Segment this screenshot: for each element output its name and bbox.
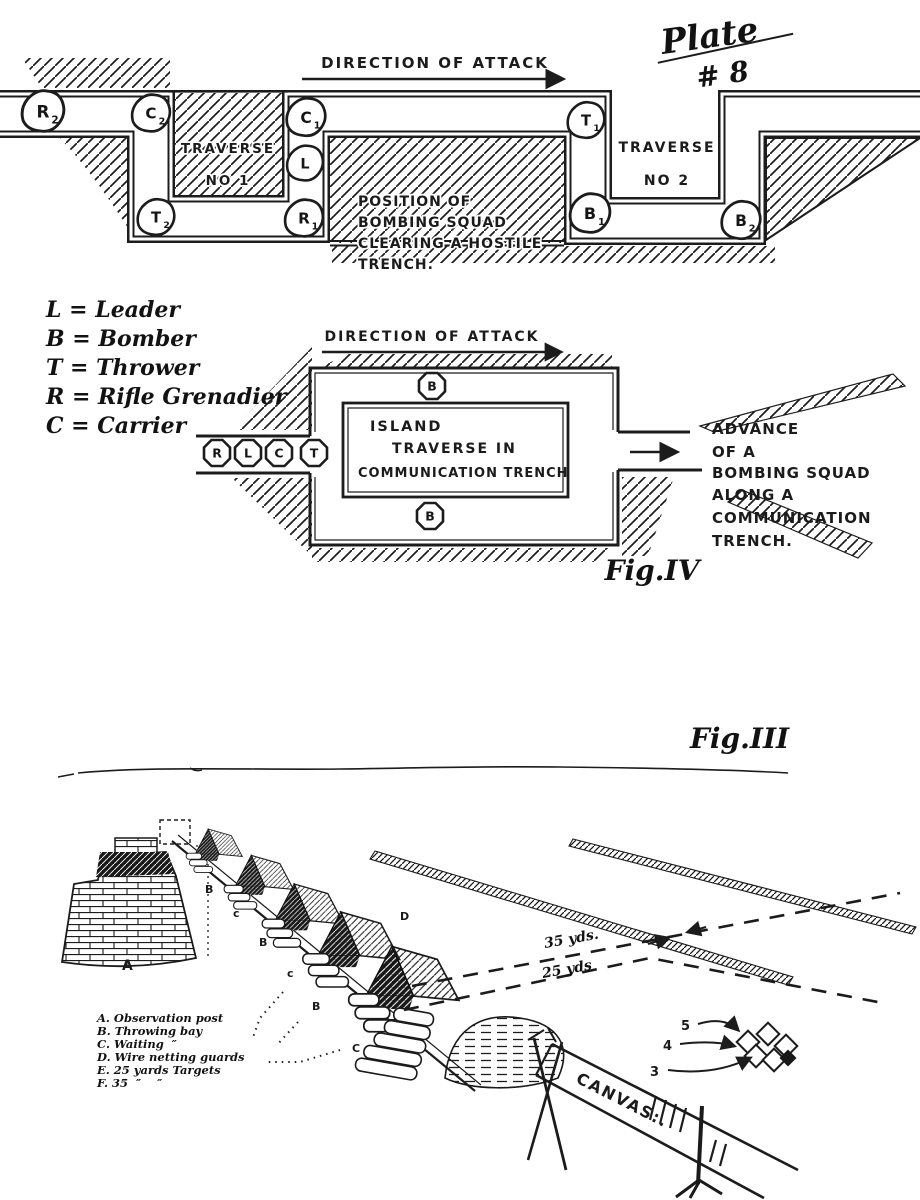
island-label-line3: COMMUNICATION TRENCH — [358, 466, 569, 481]
svg-text:5: 5 — [681, 1019, 690, 1034]
marker-B2: B2 — [722, 201, 761, 239]
distance-35-label: 35 yds. — [543, 927, 600, 952]
advance-line6: TRENCH. — [712, 532, 793, 550]
svg-text:T: T — [310, 446, 319, 461]
marker-C1: C1 — [287, 98, 326, 136]
svg-text:C: C — [274, 446, 283, 461]
legend-d: D. Wire netting guards — [96, 1050, 245, 1064]
advance-line3: BOMBING SQUAD — [712, 464, 871, 482]
svg-text:B: B — [425, 509, 435, 524]
horizon-line — [58, 767, 788, 777]
trench-start-dashed-box — [160, 820, 190, 844]
wire-guard-letter: D — [400, 910, 409, 923]
traverse2-number: NO 2 — [644, 173, 690, 189]
fig3-caption: Fig.III — [689, 722, 790, 755]
svg-text:C: C — [300, 109, 311, 127]
fig3-legend: A. Observation post B. Throwing bay C. W… — [96, 1011, 245, 1090]
position-note-line3: CLEARING A HOSTILE — [358, 236, 542, 252]
svg-text:R: R — [298, 210, 310, 228]
traverse1-label: TRAVERSE — [181, 141, 275, 157]
advance-note: ADVANCE OF A BOMBING SQUAD ALONG A COMMU… — [712, 420, 872, 550]
key-item-thrower: T = Thrower — [46, 355, 201, 381]
direction-of-attack-label-top: DIRECTION OF ATTACK — [321, 54, 549, 72]
key-item-bomber: B = Bomber — [45, 326, 197, 352]
svg-text:2: 2 — [51, 115, 58, 127]
svg-text:B: B — [584, 204, 596, 223]
target-number-labels: 5 4 3 — [650, 1019, 750, 1080]
figure-iv-island-traverse: DIRECTION OF ATTACK ISLAND TRAVERSE IN C… — [196, 329, 905, 587]
squad-marker-L: L — [235, 440, 261, 466]
svg-text:4: 4 — [663, 1039, 672, 1054]
throwing-bays — [186, 829, 459, 1032]
svg-text:2: 2 — [163, 220, 169, 231]
svg-text:2: 2 — [159, 116, 166, 127]
svg-text:T: T — [151, 210, 161, 227]
svg-text:L: L — [300, 156, 309, 172]
svg-text:2: 2 — [749, 224, 756, 235]
key-item-leader: L = Leader — [45, 297, 181, 323]
plate-drawing: Plate # 8 DIRECTION OF ATTACK TRAVERSE — [0, 0, 920, 1200]
svg-text:1: 1 — [312, 221, 319, 232]
svg-text:c: c — [287, 967, 294, 980]
svg-text:B: B — [735, 212, 747, 230]
svg-text:1: 1 — [593, 123, 599, 134]
svg-text:C: C — [145, 105, 156, 123]
direction-of-attack-label-fig4: DIRECTION OF ATTACK — [324, 329, 539, 345]
svg-text:R: R — [37, 101, 50, 121]
advance-line4: ALONG A — [712, 486, 794, 504]
hatch-left-wedge — [60, 138, 128, 228]
svg-text:B: B — [427, 379, 437, 394]
position-note-line2: BOMBING SQUAD — [358, 215, 507, 231]
svg-text:B: B — [312, 1000, 320, 1013]
island-label-line1: ISLAND — [370, 419, 442, 435]
svg-text:R: R — [212, 446, 222, 461]
key-item-rifle-grenadier: R = Rifle Grenadier — [45, 384, 288, 410]
marker-R1: R1 — [285, 200, 323, 237]
traverse2-label: TRAVERSE — [618, 140, 715, 156]
legend-b: B. Throwing bay — [96, 1024, 204, 1038]
svg-text:1: 1 — [314, 121, 321, 132]
island-box: ISLAND TRAVERSE IN COMMUNICATION TRENCH — [343, 403, 569, 497]
plate-number: # 8 — [694, 54, 751, 94]
traverse1-number: NO 1 — [206, 173, 251, 189]
figure-top-trench-diagram: DIRECTION OF ATTACK TRAVERSE NO 1 TRAVER… — [0, 54, 920, 273]
plate-title: Plate # 8 — [652, 5, 799, 99]
dotted-leaders — [252, 992, 340, 1062]
post-letter: A — [122, 958, 133, 974]
canvas-tally-marks — [650, 1096, 726, 1166]
hatch-right-triangle — [766, 138, 920, 240]
svg-text:B: B — [259, 936, 267, 949]
marker-T2: T2 — [138, 199, 175, 235]
marker-R2: R2 — [22, 91, 64, 132]
marker-T1: T1 — [568, 102, 605, 138]
advance-line2: OF A — [712, 443, 756, 461]
svg-text:C: C — [352, 1042, 360, 1055]
svg-text:c: c — [233, 907, 240, 920]
figure-iii-perspective: Fig.III A — [58, 722, 916, 1198]
bomber-marker-bottom: B — [417, 503, 443, 529]
hatch-top-left-band — [22, 58, 170, 88]
position-note-line1: POSITION OF — [358, 194, 471, 210]
legend-c: C. Waiting ″ — [97, 1037, 178, 1051]
earth-mound — [445, 1017, 564, 1088]
scanned-plate-page: Plate # 8 DIRECTION OF ATTACK TRAVERSE — [0, 0, 920, 1200]
legend-e: E. 25 yards Targets — [96, 1063, 221, 1077]
squad-marker-T: T — [301, 440, 327, 466]
targets-cluster — [737, 1023, 798, 1072]
svg-text:1: 1 — [598, 217, 605, 228]
advance-line5: COMMUNICATION — [712, 509, 872, 527]
svg-text:3: 3 — [650, 1065, 659, 1080]
bomber-marker-top: B — [419, 373, 445, 399]
island-label-line2: TRAVERSE IN — [392, 441, 517, 457]
advance-line1: ADVANCE — [712, 420, 799, 438]
marker-L: L — [287, 146, 323, 181]
svg-text:T: T — [581, 113, 591, 130]
fig4-caption: Fig.IV — [604, 554, 703, 587]
marker-C2: C2 — [132, 95, 170, 132]
wire-netting-ridges — [370, 839, 916, 985]
svg-text:L: L — [244, 446, 252, 461]
squad-marker-C: C — [266, 440, 292, 466]
marker-B1: B1 — [570, 194, 610, 233]
svg-text:B: B — [205, 883, 213, 896]
squad-marker-R: R — [204, 440, 230, 466]
legend-f: F. 35 ″ ″ — [96, 1076, 163, 1090]
position-note-line4: TRENCH. — [358, 257, 434, 273]
legend-a: A. Observation post — [96, 1011, 224, 1025]
key-item-carrier: C = Carrier — [46, 413, 188, 439]
